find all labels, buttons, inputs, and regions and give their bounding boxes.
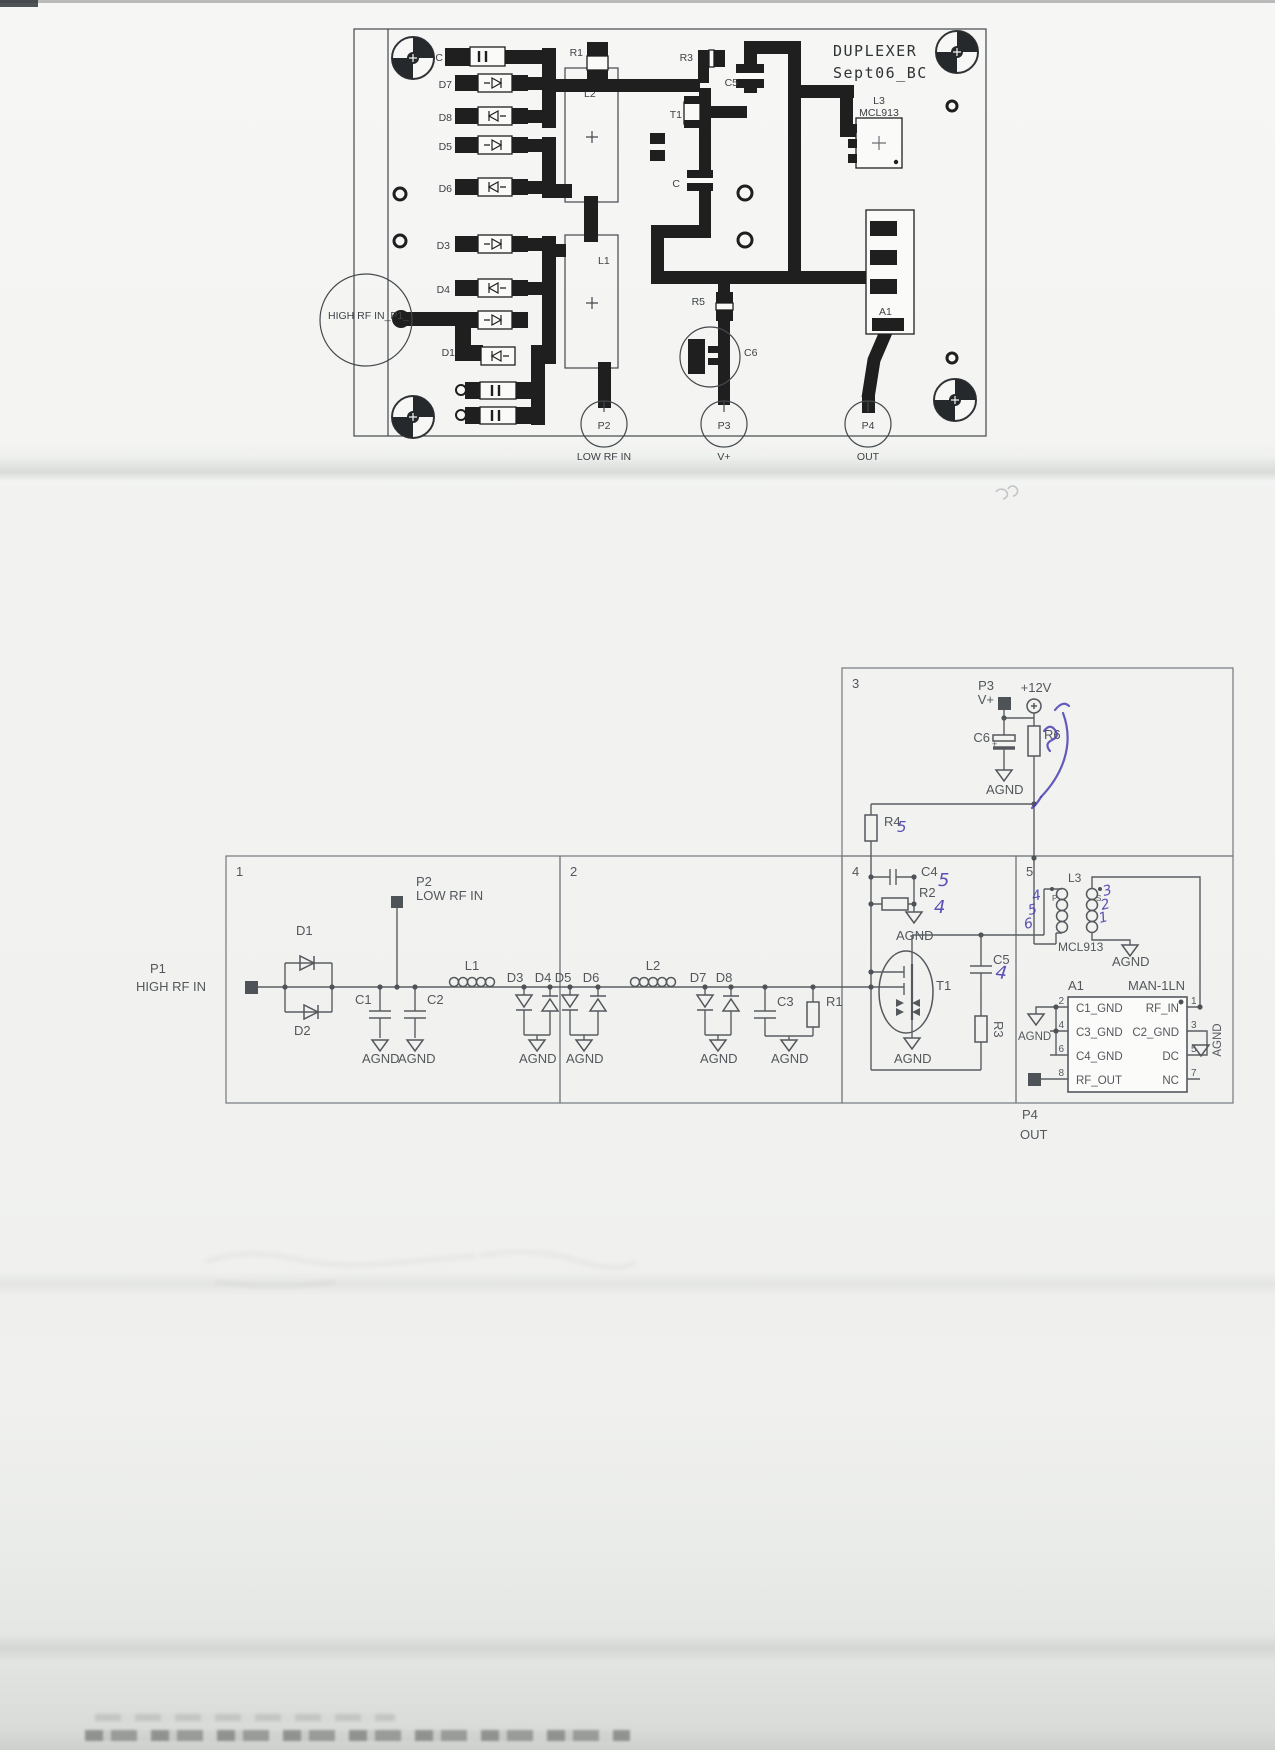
d6-ref: D6 [583, 970, 600, 985]
scan-drawing: DUPLEXER Sept06_BC L2 L1 [0, 0, 1275, 1750]
pcb-p4: P4 [862, 420, 875, 432]
fiducial-top-right [936, 31, 978, 73]
fiducial-bottom-right [934, 379, 976, 421]
pcb-layout: DUPLEXER Sept06_BC L2 L1 [320, 29, 986, 463]
a1-pin6-num: 6 [1058, 1044, 1064, 1055]
diode-pair-d3-d4: D3 D4 AGND [507, 970, 558, 1066]
pcb-ref-l3: L3 [873, 95, 885, 107]
diode-d1-d2: D1 D2 [282, 923, 334, 1038]
a1-pin8-num: 8 [1058, 1068, 1064, 1079]
output-section: P S L3 MCL913 AGND A1 MAN-1LN C1_GND C3_… [1018, 855, 1224, 1142]
pcb-ref-d4: D4 [437, 284, 451, 296]
a1-pin2-num: 2 [1058, 996, 1064, 1007]
c6-polarity: + [992, 739, 997, 749]
section-4-number: 4 [852, 864, 859, 879]
pcb-ref-d7: D7 [439, 79, 453, 91]
cap-c3-res-r1: C3 R1 AGND [754, 984, 843, 1066]
pcb-p1-label: HIGH RF IN_P1_ [328, 310, 409, 322]
pcb-ref-r5: R5 [692, 296, 706, 308]
p3-label: V+ [978, 692, 994, 707]
pcb-ref-d8: D8 [439, 112, 453, 124]
l1-ref: L1 [465, 958, 479, 973]
a1-pin-c1gnd: C1_GND [1076, 1003, 1123, 1015]
pcb-ref-l3-part: MCL913 [859, 107, 899, 119]
c6-agnd: AGND [986, 782, 1024, 797]
pcb-ref-t1: T1 [670, 109, 682, 121]
faint-pencil-marks [205, 1252, 635, 1286]
d2-ref: D2 [294, 1023, 311, 1038]
ink-r2-value: 4 [934, 897, 945, 918]
l3-primary-dot-label: P [1052, 894, 1057, 903]
v12-label: +12V [1021, 680, 1052, 695]
pcb-ref-c-mid: C [672, 178, 680, 190]
t1-ref: T1 [936, 978, 951, 993]
p2-ref: P2 [416, 874, 432, 889]
a1-ref: A1 [1068, 978, 1084, 993]
pcb-p2-label: LOW RF IN [577, 451, 631, 463]
a1-pin7-num: 7 [1191, 1068, 1197, 1079]
d7-ref: D7 [690, 970, 707, 985]
pcb-right-components: R1 R3 C5 T1 C L3 MCL913 R5 C6 A1 [570, 47, 914, 387]
d7-agnd: AGND [700, 1051, 738, 1066]
port-p1: P1 HIGH RF IN [136, 961, 258, 994]
l3-part: MCL913 [1058, 940, 1104, 954]
d5-ref: D5 [555, 970, 572, 985]
d4-ref: D4 [535, 970, 552, 985]
pcb-ref-c6: C6 [744, 347, 758, 359]
a1-pin-nc: NC [1162, 1075, 1179, 1087]
pcb-ref-d1: D1 [442, 347, 456, 359]
supply-section: P3 V+ +12V C6 + AGND R6 R4 [865, 678, 1061, 858]
c2-ref: C2 [427, 992, 444, 1007]
diode-pair-d7-d8: D7 D8 AGND [690, 970, 739, 1066]
c3-ref: C3 [777, 994, 794, 1009]
a1-left-agnd: AGND [1018, 1031, 1051, 1043]
c1-ref: C1 [355, 992, 372, 1007]
p2-label: LOW RF IN [416, 888, 483, 903]
pcb-p2: P2 [598, 420, 611, 432]
a1-pin-c2gnd: C2_GND [1132, 1027, 1179, 1039]
a1-pin-rfin: RF_IN [1146, 1003, 1179, 1015]
pcb-packages: C D7 D8 D5 D6 D3 D4 D1 [435, 47, 528, 424]
p1-label: HIGH RF IN [136, 979, 206, 994]
pcb-ref-c-top: C [435, 52, 443, 64]
p3-ref: P3 [978, 678, 994, 693]
ink-c4-value: 5 [938, 870, 949, 891]
a1-pin3-num: 3 [1191, 1020, 1197, 1031]
p1-ref: P1 [150, 961, 166, 976]
diode-pair-d5-d6: D5 D6 AGND [555, 970, 606, 1066]
c1-agnd: AGND [362, 1051, 400, 1066]
pcb-ref-r3: R3 [680, 52, 694, 64]
d5-agnd: AGND [566, 1051, 604, 1066]
ink-r4-value: 5 [897, 818, 907, 836]
pcb-ref-d3: D3 [437, 240, 451, 252]
d3-ref: D3 [507, 970, 524, 985]
pcb-ref-r1: R1 [570, 47, 584, 59]
a1-pin-dc: DC [1162, 1051, 1179, 1063]
d1-ref: D1 [296, 923, 313, 938]
l3-agnd: AGND [1112, 954, 1150, 969]
a1-part: MAN-1LN [1128, 978, 1185, 993]
scanned-page: DUPLEXER Sept06_BC L2 L1 [0, 0, 1275, 1750]
section-5-number: 5 [1026, 864, 1033, 879]
cap-c1: C1 AGND [355, 984, 400, 1066]
pcb-title-rev: Sept06_BC [833, 64, 928, 82]
a1-pin4-num: 4 [1058, 1020, 1064, 1031]
a1-pin1-num: 1 [1191, 996, 1197, 1007]
a1-pin-c3gnd: C3_GND [1076, 1027, 1123, 1039]
pcb-ref-a1: A1 [879, 306, 892, 318]
c2-agnd: AGND [398, 1051, 436, 1066]
l3-ref: L3 [1068, 871, 1082, 885]
inductor-l2: L2 [631, 958, 676, 987]
pcb-copper-traces [392, 41, 911, 425]
r3-ref: R3 [991, 1021, 1006, 1038]
pcb-title: DUPLEXER [833, 42, 917, 60]
pencil-smudge [996, 486, 1018, 499]
c6-ref: C6 [973, 730, 990, 745]
a1-pin5-num: 5 [1191, 1044, 1197, 1055]
pcb-p3-label: V+ [717, 451, 730, 463]
d3-agnd: AGND [519, 1051, 557, 1066]
a1-pin-c4gnd: C4_GND [1076, 1051, 1123, 1063]
p4-ref: P4 [1022, 1107, 1038, 1122]
pcb-p4-label: OUT [857, 451, 880, 463]
fiducial-bottom-left [392, 396, 434, 438]
section-1-number: 1 [236, 864, 243, 879]
l2-ref: L2 [646, 958, 660, 973]
c4-ref: C4 [921, 864, 938, 879]
a1-pin-rfout: RF_OUT [1076, 1075, 1122, 1087]
fiducial-top-left [392, 37, 434, 79]
cap-c2: C2 AGND [398, 984, 444, 1066]
ink-c5-value: 4 [994, 962, 1008, 984]
c3-agnd: AGND [771, 1051, 809, 1066]
r1-ref: R1 [826, 994, 843, 1009]
pcb-p3: P3 [718, 420, 731, 432]
a1-right-agnd: AGND [1212, 1023, 1224, 1056]
d8-ref: D8 [716, 970, 733, 985]
section-2-number: 2 [570, 864, 577, 879]
t1-agnd: AGND [894, 1051, 932, 1066]
p4-label: OUT [1020, 1127, 1048, 1142]
inductor-l1: L1 [450, 958, 495, 987]
schematic: 1 2 3 4 5 P1 HIGH RF IN D1 D2 C1 AGND P2… [136, 668, 1233, 1142]
pcb-ref-d5: D5 [439, 141, 453, 153]
section-3-number: 3 [852, 676, 859, 691]
pcb-ref-l1: L1 [598, 255, 610, 267]
pcb-ref-d6: D6 [439, 183, 453, 195]
